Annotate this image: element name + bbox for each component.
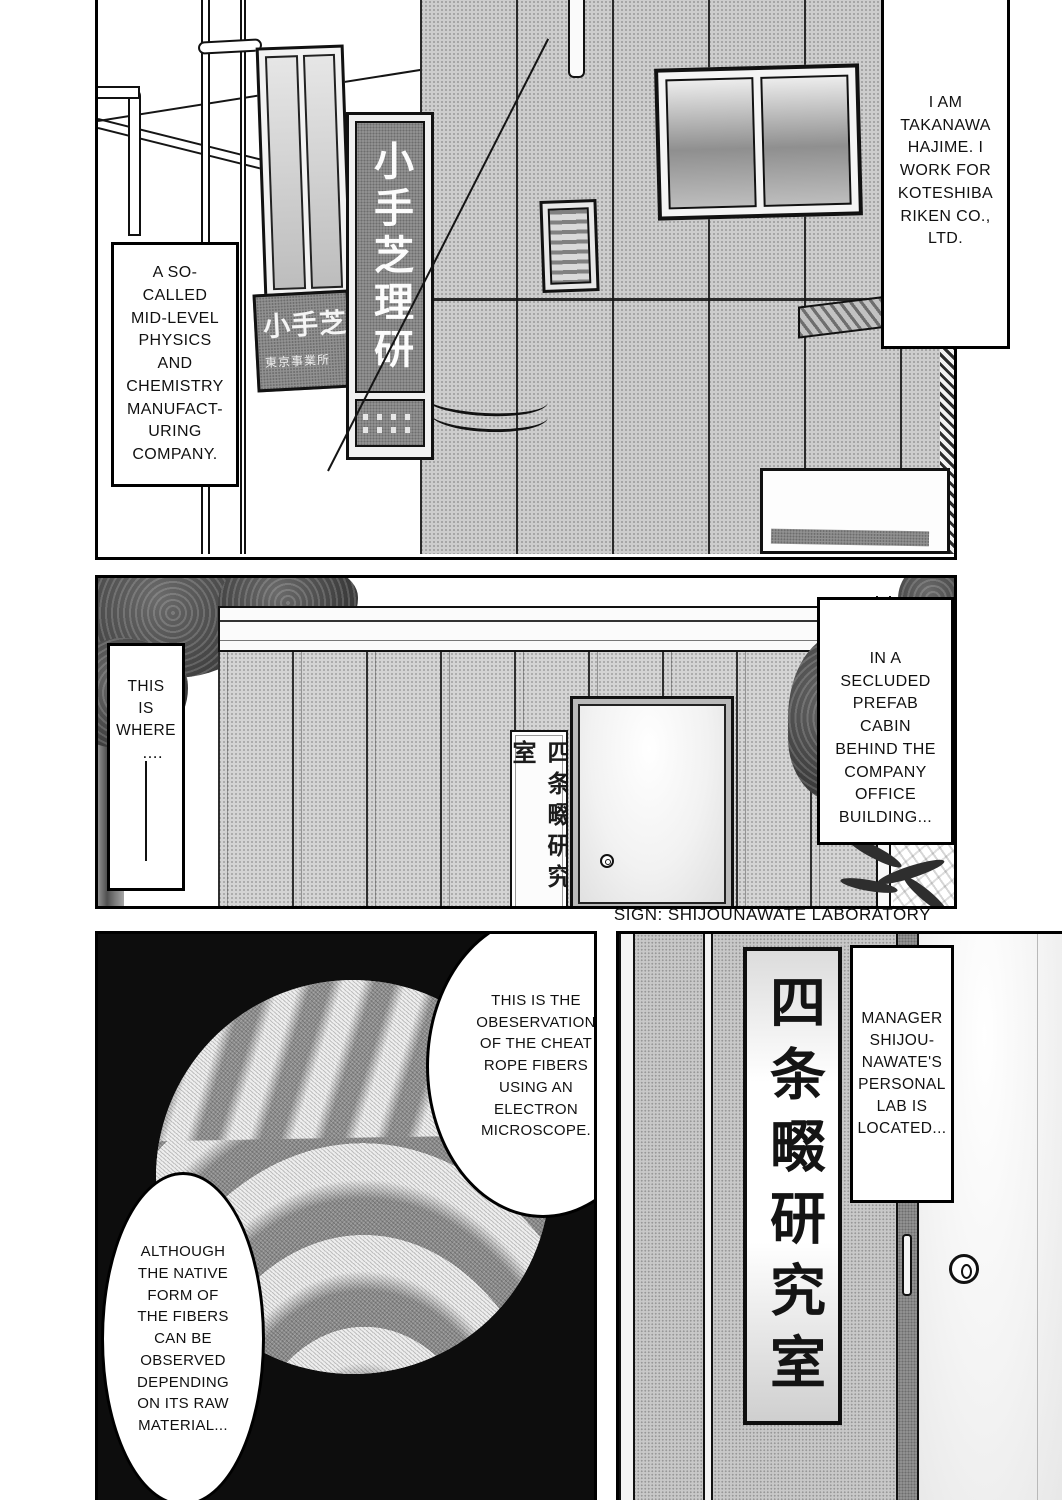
bent-pipe (128, 88, 141, 236)
rail-line (220, 620, 886, 622)
vertical-ellipsis: .... (143, 748, 150, 757)
doorknob-icon (600, 854, 614, 868)
sign-subtitle-kanji: 東京事業所 (265, 350, 346, 371)
manga-page: 小手芝理研 東京事業所 小手芝理研 I AM TAKANAWA HAJIME. … (0, 0, 1062, 1500)
utility-pole (240, 0, 246, 554)
window-pane (302, 54, 343, 289)
door-sign-kanji: 四条畷研究室 (510, 740, 568, 909)
window-pane (265, 55, 306, 290)
door-handle (902, 1234, 912, 1296)
wall-vent (539, 199, 599, 293)
vent-slats (548, 207, 592, 284)
panel-lab-door: 四条畷研究室 (616, 931, 1062, 1500)
door-sign-vertical: 四条畷研究室 (510, 730, 568, 909)
narration-box-company: A SO- CALLED MID-LEVEL PHYSICS AND CHEMI… (111, 242, 239, 487)
street-sign-box (760, 468, 950, 554)
window-frame-structure (256, 45, 353, 300)
narration-text: A SO- CALLED MID-LEVEL PHYSICS AND CHEMI… (126, 262, 224, 466)
bubble-text: ALTHOUGH THE NATIVE FORM OF THE FIBERS C… (137, 1241, 229, 1437)
door-edge-line (1037, 934, 1038, 1500)
tiny-text-row (363, 414, 417, 420)
cabin-roof-rail (218, 606, 888, 652)
vertical-dash-line (145, 761, 147, 861)
narration-box-manager-lab: MANAGER SHIJOU- NAWATE'S PERSONAL LAB IS… (850, 945, 954, 1203)
tiny-text-row (363, 427, 417, 433)
panel-microscope-view: THIS IS THE OBESERVATION OF THE CHEAT RO… (95, 931, 597, 1500)
narration-box-this-is-where: THIS IS WHERE .... (107, 643, 185, 891)
bent-pipe (98, 86, 140, 99)
pole-bracket (198, 38, 263, 54)
building-window (654, 63, 863, 220)
bubble-text: THIS IS THE OBESERVATION OF THE CHEAT RO… (476, 990, 595, 1142)
lab-sign-kanji: 四条畷研究室 (765, 973, 821, 1421)
cabin-door-frame (570, 696, 734, 909)
narration-box-cabin: IN A SECLUDED PREFAB CABIN BEHIND THE CO… (817, 597, 954, 845)
lab-sign-vertical: 四条畷研究室 (743, 947, 842, 1425)
sign-main-board: 小手芝理研 (355, 121, 425, 393)
window-pane (665, 77, 756, 209)
narration-text: IN A SECLUDED PREFAB CABIN BEHIND THE CO… (835, 648, 936, 830)
building-sign-horizontal: 小手芝理研 東京事業所 (253, 290, 354, 393)
wall-trim-strip (619, 934, 635, 1500)
cabin-door (578, 704, 726, 904)
doorknob-icon (949, 1254, 979, 1284)
rail-line (220, 640, 886, 641)
sign-title-kanji: 小手芝理研 (262, 301, 344, 344)
narration-text: I AM TAKANAWA HAJIME. I WORK FOR KOTESHI… (898, 92, 993, 251)
sign-translation-caption: SIGN: SHIJOUNAWATE LABORATORY (95, 905, 957, 929)
sign-lower-board (355, 399, 425, 447)
speech-bubble-native-form: ALTHOUGH THE NATIVE FORM OF THE FIBERS C… (101, 1172, 265, 1500)
sign-kanji-vertical: 小手芝理研 (370, 140, 410, 375)
narration-text: THIS IS WHERE (116, 676, 176, 742)
wall-pipe (568, 0, 585, 78)
sign-strip (771, 529, 929, 547)
narration-text: MANAGER SHIJOU- NAWATE'S PERSONAL LAB IS… (858, 1008, 947, 1140)
wall-trim-strip (703, 934, 713, 1500)
narration-box-intro: I AM TAKANAWA HAJIME. I WORK FOR KOTESHI… (881, 0, 1010, 349)
window-pane (760, 75, 851, 207)
